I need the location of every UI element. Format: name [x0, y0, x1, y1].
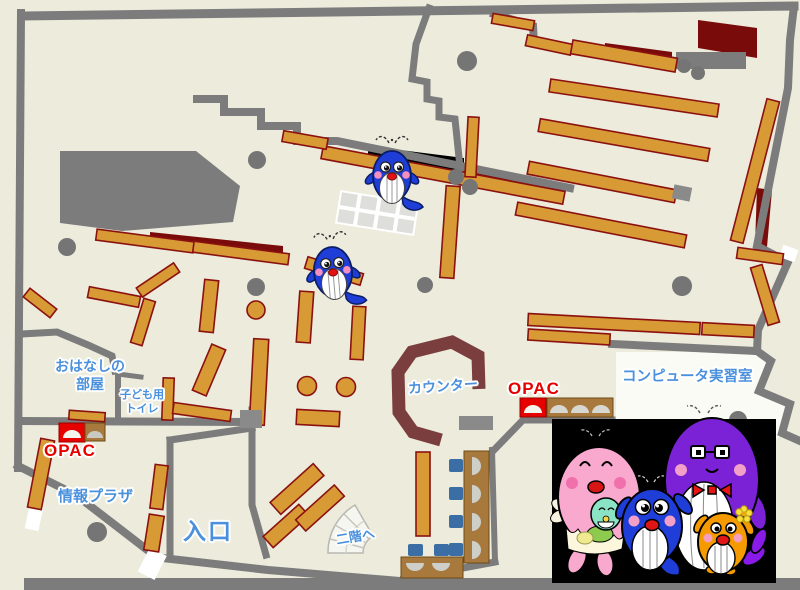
bookshelf — [282, 131, 328, 150]
label-storytelling-room: おはなしの 部屋 — [40, 358, 140, 393]
label-info-plaza: 情報プラザ — [58, 488, 133, 507]
pillar — [672, 276, 692, 296]
reading-table — [336, 208, 356, 226]
bookshelf — [440, 186, 460, 279]
label-opac-right: OPAC — [508, 378, 560, 399]
bookshelf — [144, 514, 164, 552]
bookshelf — [571, 40, 678, 72]
round-table — [247, 301, 265, 319]
bookshelf — [465, 117, 479, 177]
bookshelf — [515, 202, 686, 248]
bookshelf — [136, 263, 179, 297]
round-table — [337, 378, 356, 397]
pillar — [677, 59, 691, 73]
chair — [408, 544, 423, 556]
pillar — [457, 51, 477, 71]
gray-block — [240, 410, 262, 428]
bookshelf — [538, 119, 710, 162]
reading-table — [395, 217, 415, 235]
bookshelf — [736, 247, 783, 264]
pillar — [691, 66, 705, 80]
bookshelf — [69, 410, 106, 421]
pillar — [417, 277, 433, 293]
label-kids-toilet: 子ども用 トイレ — [112, 389, 172, 417]
bookshelf — [549, 79, 719, 117]
label-opac-left: OPAC — [44, 440, 96, 461]
label-computer-room: コンピュータ実習室 — [622, 368, 753, 386]
bookshelf — [416, 452, 430, 536]
bookshelf — [150, 464, 168, 509]
opac-terminal-right — [520, 398, 613, 417]
pillar — [462, 179, 478, 195]
pillar — [58, 238, 76, 256]
pillar — [247, 278, 265, 296]
reading-table — [359, 194, 379, 212]
bookshelf — [199, 279, 218, 332]
chair — [449, 543, 463, 556]
chair — [449, 459, 463, 472]
pillar — [448, 169, 464, 185]
bookshelf — [192, 344, 225, 396]
chair — [434, 544, 449, 556]
reading-table — [356, 211, 376, 229]
round-table — [298, 377, 317, 396]
bookshelf — [525, 35, 572, 55]
reading-table — [339, 191, 359, 209]
bookshelf — [23, 288, 57, 318]
bookshelf — [87, 287, 140, 308]
bookshelf — [96, 229, 195, 253]
reading-table — [376, 214, 396, 232]
bookshelf — [350, 306, 366, 360]
bookshelf — [296, 409, 340, 426]
bookshelf — [702, 323, 755, 338]
pillar — [248, 151, 266, 169]
counter-desk — [459, 416, 493, 430]
chair — [449, 515, 463, 528]
reading-tables-grid — [336, 191, 418, 235]
entrance-door-gap — [138, 547, 167, 580]
structure-block — [60, 151, 240, 231]
label-entrance: 入口 — [183, 517, 233, 546]
library-floor-map: おはなしの 部屋 子ども用 トイレ OPAC 情報プラザ 入口 カウンター OP… — [0, 0, 800, 590]
bookshelf — [528, 329, 611, 345]
pillar — [87, 522, 107, 542]
bookshelf — [296, 291, 314, 343]
chair — [449, 487, 463, 500]
